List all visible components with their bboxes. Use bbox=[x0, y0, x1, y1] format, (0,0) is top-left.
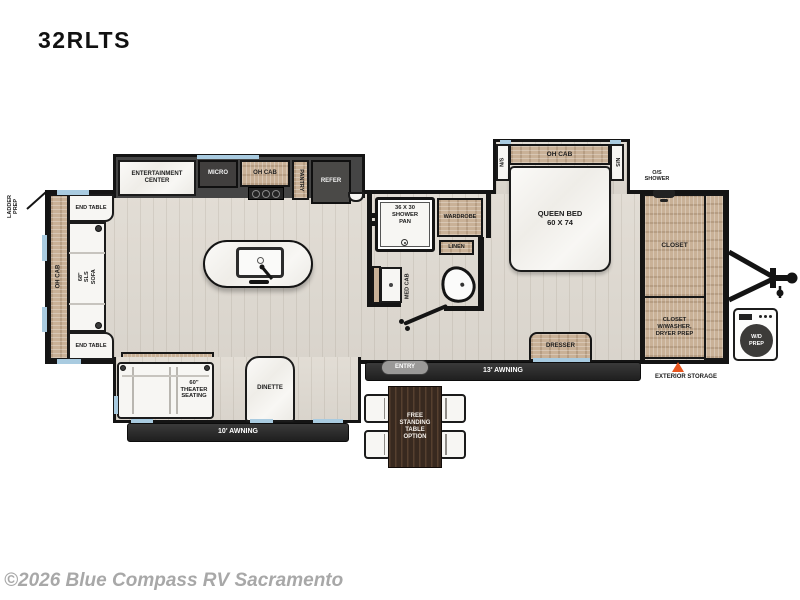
end-table-bottom-label: END TABLE bbox=[75, 343, 106, 349]
ladder-prep-label: LADDER PREP bbox=[7, 195, 20, 218]
dresser-label: DRESSER bbox=[529, 332, 592, 361]
floorplan-page: 32RLTS ENTERTAINMENT CENTER MICRO OH CAB… bbox=[0, 0, 800, 600]
front-wardrobe-column bbox=[704, 194, 725, 360]
wardrobe-label: WARDROBE bbox=[437, 198, 483, 237]
nightstand-right: N/S bbox=[610, 144, 624, 181]
shower-valve-icon bbox=[371, 221, 378, 226]
shower-drain-icon bbox=[401, 239, 408, 246]
hitch-plate bbox=[770, 268, 776, 288]
exterior-storage-marker-icon bbox=[672, 362, 684, 372]
chair-back-line bbox=[384, 398, 386, 419]
sofa-armrest-line bbox=[69, 303, 105, 305]
outside-shower-icon bbox=[653, 190, 675, 198]
dining-chair bbox=[439, 430, 466, 459]
cupholder-icon bbox=[95, 225, 102, 232]
burner-icon bbox=[272, 190, 280, 198]
sofa-armrest-line bbox=[69, 252, 105, 254]
rear-oh-cab-label: OH CAB bbox=[55, 265, 62, 289]
sofa: 68" SLS SOFA bbox=[68, 222, 106, 332]
sink-base-bar bbox=[249, 280, 269, 284]
wd-prep-label: W/D PREP bbox=[749, 334, 764, 347]
med-cab-label: MED CAB bbox=[404, 273, 410, 299]
bedroom-oh-cab-label: OH CAB bbox=[509, 144, 610, 165]
bath-right-wall bbox=[478, 237, 484, 311]
watermark: ©2026 Blue Compass RV Sacramento bbox=[4, 570, 343, 592]
washer-knob-icon bbox=[759, 315, 762, 318]
window bbox=[197, 155, 259, 159]
window bbox=[42, 307, 47, 332]
nightstand-right-label: N/S bbox=[614, 158, 620, 167]
queen-bed-label: QUEEN BED 60 X 74 bbox=[509, 166, 611, 272]
page-title: 32RLTS bbox=[38, 27, 131, 54]
sink-drain-icon bbox=[257, 257, 264, 264]
chair-back-line bbox=[445, 434, 447, 455]
washer-knob-icon bbox=[764, 315, 767, 318]
cupholder-icon bbox=[120, 365, 126, 371]
dining-chair bbox=[364, 430, 391, 459]
end-table-top-label: END TABLE bbox=[75, 205, 106, 211]
shower-pan-label: 36 X 30 SHOWER PAN bbox=[377, 205, 433, 225]
window bbox=[57, 190, 89, 195]
closet-washer-dryer-label: CLOSET W/WASHER, DRYER PREP bbox=[643, 296, 706, 359]
window bbox=[114, 396, 118, 414]
entry-label: ENTRY bbox=[395, 364, 415, 371]
rear-oh-cab: OH CAB bbox=[49, 194, 69, 360]
kitchen-oh-cab-label: OH CAB bbox=[240, 160, 290, 187]
chair-back-line bbox=[384, 434, 386, 455]
end-table-bottom: END TABLE bbox=[68, 332, 114, 360]
exterior-storage-label: EXTERIOR STORAGE bbox=[643, 374, 729, 381]
pantry-label: PANTRY bbox=[297, 169, 303, 191]
island-sink bbox=[236, 247, 284, 278]
window bbox=[42, 235, 47, 261]
pantry: PANTRY bbox=[292, 160, 309, 200]
med-cab: MED CAB bbox=[401, 266, 414, 306]
shower-valve-icon bbox=[371, 213, 378, 218]
dining-chair bbox=[439, 394, 466, 423]
awning-10: 10' AWNING bbox=[127, 423, 349, 442]
vanity-sink bbox=[380, 267, 402, 303]
front-closet-label: CLOSET bbox=[643, 194, 706, 298]
washer-dryer-prep: W/D PREP bbox=[733, 308, 778, 361]
free-standing-table-label: FREE STANDING TABLE OPTION bbox=[400, 413, 431, 441]
entertainment-center-label: ENTERTAINMENT CENTER bbox=[118, 160, 196, 196]
ladder-prep-pointer bbox=[27, 192, 46, 209]
burner-icon bbox=[252, 190, 260, 198]
toilet-drain-icon bbox=[460, 282, 465, 287]
entry-door: ENTRY bbox=[381, 360, 429, 375]
awning-13-label: 13' AWNING bbox=[483, 367, 523, 375]
washer-control-icon bbox=[739, 314, 752, 320]
hitch-coupler-icon bbox=[787, 273, 798, 284]
sofa-label: 68" SLS SOFA bbox=[77, 270, 96, 285]
dining-chair bbox=[364, 394, 391, 423]
awning-10-label: 10' AWNING bbox=[218, 428, 258, 436]
chair-back-line bbox=[445, 398, 447, 419]
bedroom-wall-stub bbox=[486, 194, 491, 238]
door-hinge-icon bbox=[405, 326, 410, 331]
door-hinge-icon bbox=[399, 319, 404, 324]
microwave-label: MICRO bbox=[198, 160, 238, 188]
window bbox=[500, 140, 511, 144]
hitch-frame bbox=[729, 278, 775, 300]
nightstand-left: N/S bbox=[496, 144, 510, 181]
nightstand-left-label: N/S bbox=[500, 158, 506, 167]
range-cooktop bbox=[248, 187, 284, 200]
hitch-jack-icon bbox=[777, 290, 784, 297]
cupholder-icon bbox=[95, 322, 102, 329]
linen-label: LINEN bbox=[439, 240, 474, 255]
washer-drum-icon: W/D PREP bbox=[740, 324, 773, 357]
outside-shower-icon bbox=[660, 199, 668, 202]
window bbox=[610, 140, 621, 144]
washer-knob-icon bbox=[769, 315, 772, 318]
refrigerator-label: REFER bbox=[311, 160, 351, 204]
dinette-label: DINETTE bbox=[245, 356, 295, 422]
window bbox=[57, 359, 81, 364]
burner-icon bbox=[262, 190, 270, 198]
free-standing-table: FREE STANDING TABLE OPTION bbox=[388, 386, 442, 468]
sink-drain-icon bbox=[389, 283, 393, 287]
outside-shower-label: O/S SHOWER bbox=[638, 170, 676, 183]
theater-seating-label: 60" THEATER SEATING bbox=[176, 371, 212, 409]
end-table-top: END TABLE bbox=[68, 194, 114, 222]
hitch-frame bbox=[729, 252, 775, 278]
ladder-prep: LADDER PREP bbox=[0, 183, 26, 229]
